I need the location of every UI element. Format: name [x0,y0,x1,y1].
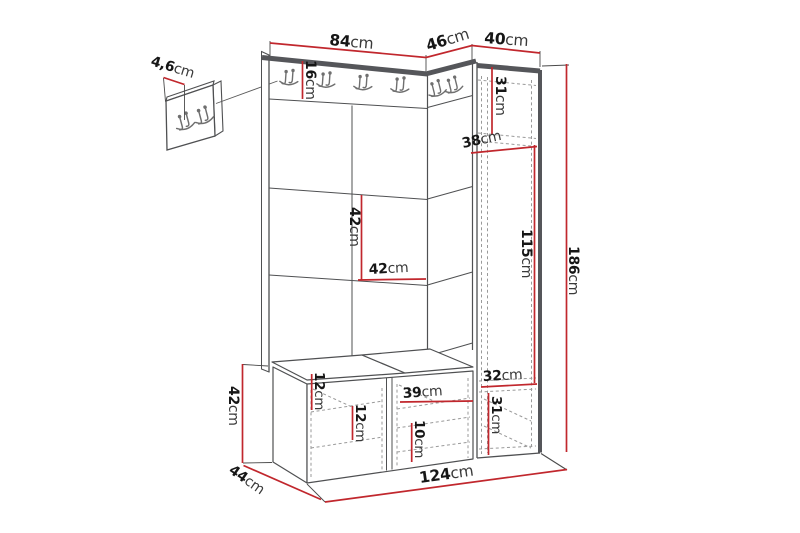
dim-label-wardrobe-width: 40cm [484,29,529,50]
hook-rail-bottom [269,99,428,109]
dim-label-bench-shelf-gap: 12cm [352,404,368,442]
dim-label-tile-width: 42cm [368,260,408,278]
dim-label-rail-height: 16cm [302,60,318,100]
panel-side-edge [262,52,270,373]
corner-tile-row-line [428,187,473,200]
panel-tile-row-line [269,275,428,286]
dim-label-bench-shelf-top: 12cm [311,372,327,410]
hidden-shelf-line [479,389,536,392]
dim-label-panel-width: 84cm [329,31,374,53]
dim-label-shelf-depth: 38cm [461,128,503,152]
diagram-canvas: 4,6cm 84cm 46cm 40cm [0,0,800,533]
dim-label-bench-compartment: 39cm [402,383,443,402]
corner-tile-row-line [428,272,473,285]
dim-label-door-height: 115cm [518,229,534,278]
coat-hook-icon [317,70,336,87]
dimension-line-tile-width [358,279,426,280]
dim-label-wardrobe-lower-width: 32cm [482,367,522,385]
extension-line [307,484,325,502]
hook-rail-bottom-corner [428,96,473,108]
extension-line [243,463,272,464]
dim-label-wardrobe-lower-height: 31cm [488,396,504,434]
dim-label-tile-height: 42cm [346,207,362,247]
corner-top-rail [428,61,477,74]
bench-side-face [273,367,307,483]
coat-hook-icon [391,75,410,92]
dim-label-corner-panel-width: 46cm [424,25,471,55]
floor-edge [541,454,567,471]
coat-hook-icon [426,78,447,98]
extension-line [164,78,166,102]
bench [272,349,473,483]
dim-label-bench-lower-gap: 10cm [411,420,427,458]
wardrobe-top-rail [477,66,540,72]
coat-hook-icon [280,68,299,85]
hook-panel-detail: 4,6cm [149,54,278,150]
dim-label-hook-panel-depth: 4,6cm [149,54,196,82]
wall-panel [262,52,477,373]
dim-label-wardrobe-top-height: 31cm [492,76,508,116]
wardrobe-bottom-edge [477,453,540,458]
panel-tile-row-line [269,188,428,200]
extension-line [542,65,569,66]
coat-hook-icon [442,74,463,94]
coat-hook-icon [354,73,373,90]
dim-label-total-height: 186cm [565,246,581,295]
dim-label-bench-height: 42cm [225,386,241,426]
